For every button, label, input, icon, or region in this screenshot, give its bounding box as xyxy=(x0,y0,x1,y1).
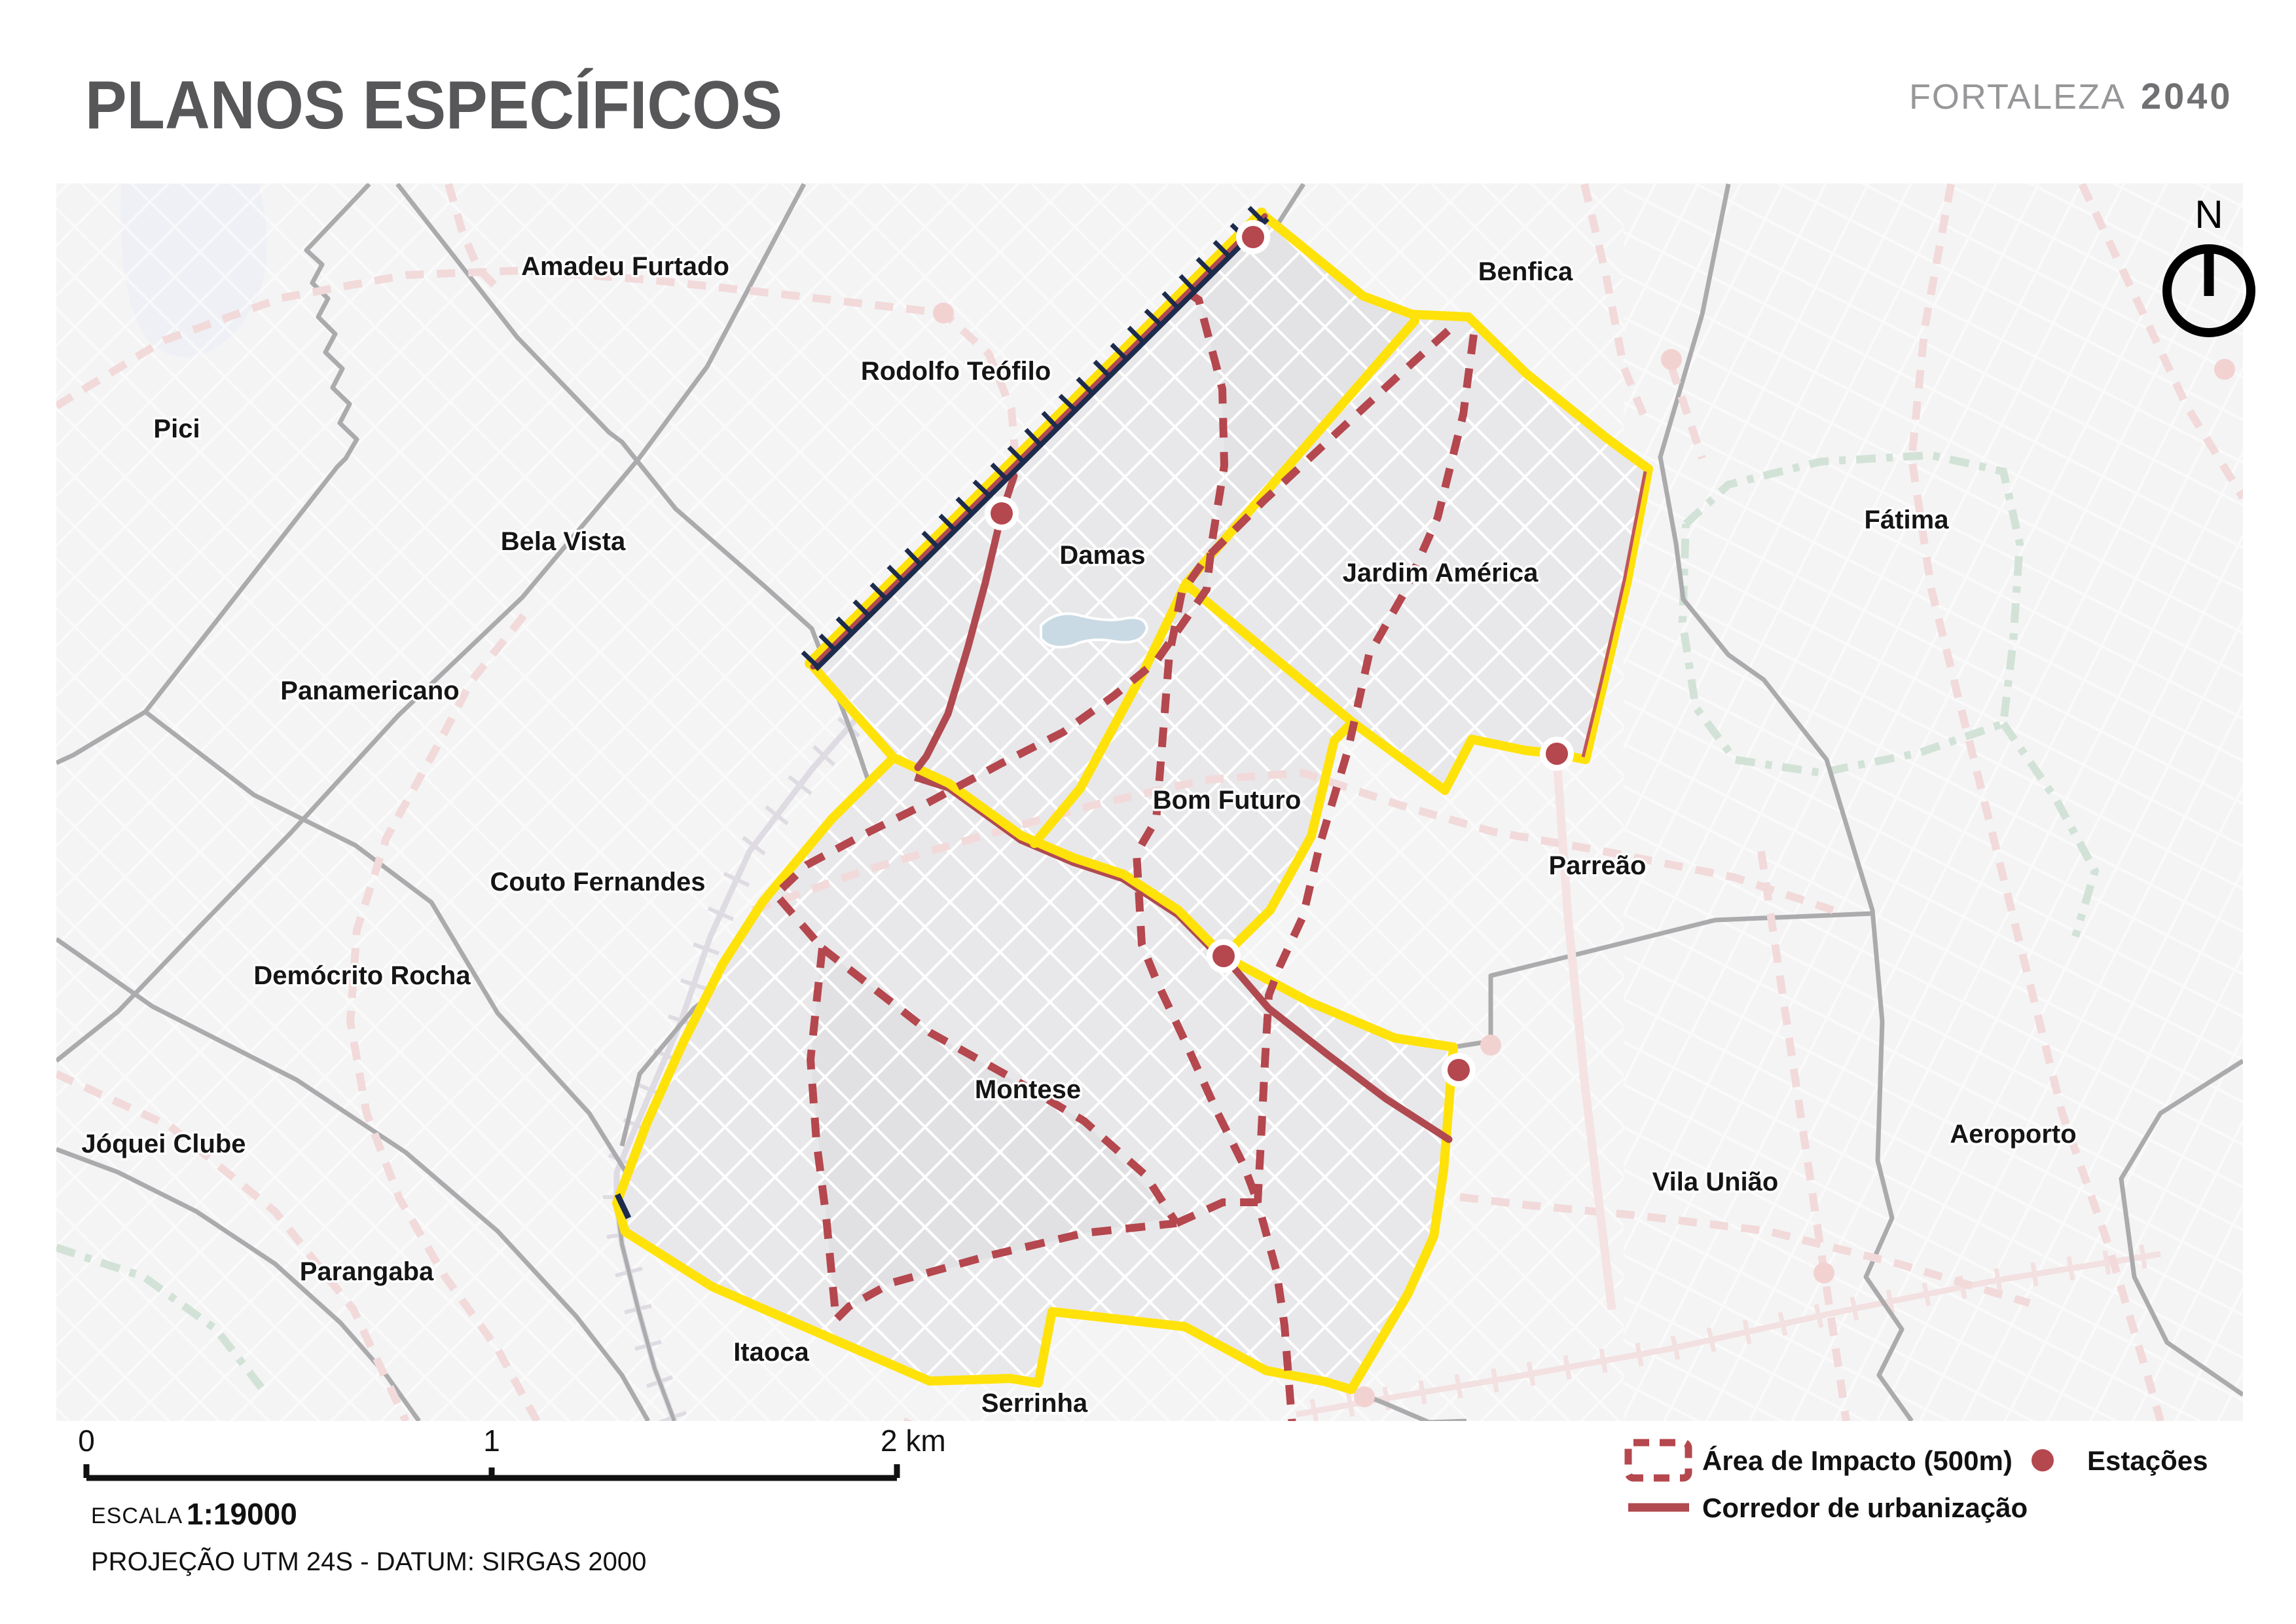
svg-text:0: 0 xyxy=(78,1424,95,1458)
svg-text:2040: 2040 xyxy=(2141,75,2233,117)
svg-text:Serrinha: Serrinha xyxy=(981,1389,1088,1418)
svg-text:Damas: Damas xyxy=(1059,541,1145,570)
svg-text:Área de Impacto (500m): Área de Impacto (500m) xyxy=(1702,1445,2013,1476)
svg-text:Jóquei Clube: Jóquei Clube xyxy=(81,1130,246,1158)
svg-text:PROJEÇÃO UTM 24S - DATUM: SIRG: PROJEÇÃO UTM 24S - DATUM: SIRGAS 2000 xyxy=(91,1547,646,1576)
svg-text:1:19000: 1:19000 xyxy=(187,1497,297,1531)
svg-text:Fátima: Fátima xyxy=(1865,506,1950,534)
svg-text:Estações: Estações xyxy=(2087,1445,2208,1476)
svg-text:Parangaba: Parangaba xyxy=(300,1257,434,1286)
svg-text:ESCALA: ESCALA xyxy=(91,1504,183,1528)
svg-text:N: N xyxy=(2195,193,2223,236)
svg-text:PLANOS ESPECÍFICOS: PLANOS ESPECÍFICOS xyxy=(85,67,782,143)
svg-text:Rodolfo Teófilo: Rodolfo Teófilo xyxy=(861,357,1051,386)
svg-text:Parreão: Parreão xyxy=(1549,851,1647,880)
svg-text:Aeroporto: Aeroporto xyxy=(1950,1120,2076,1149)
svg-text:Benfica: Benfica xyxy=(1478,257,1573,286)
svg-text:Couto Fernandes: Couto Fernandes xyxy=(490,868,706,896)
svg-text:1: 1 xyxy=(483,1424,500,1458)
svg-text:Demócrito Rocha: Demócrito Rocha xyxy=(253,961,471,990)
svg-text:Amadeu Furtado: Amadeu Furtado xyxy=(521,252,729,281)
svg-text:Bela Vista: Bela Vista xyxy=(501,527,626,556)
svg-text:Itaoca: Itaoca xyxy=(733,1338,809,1367)
svg-text:2 km: 2 km xyxy=(881,1424,946,1458)
svg-text:Vila União: Vila União xyxy=(1652,1168,1779,1196)
svg-text:FORTALEZA: FORTALEZA xyxy=(1909,77,2126,117)
svg-text:Corredor de urbanização: Corredor de urbanização xyxy=(1702,1492,2028,1523)
svg-text:Pici: Pici xyxy=(153,415,200,443)
svg-text:Jardim América: Jardim América xyxy=(1343,559,1539,587)
svg-text:Bom Futuro: Bom Futuro xyxy=(1153,786,1302,815)
svg-text:Panamericano: Panamericano xyxy=(280,676,459,705)
svg-text:Montese: Montese xyxy=(975,1075,1081,1104)
